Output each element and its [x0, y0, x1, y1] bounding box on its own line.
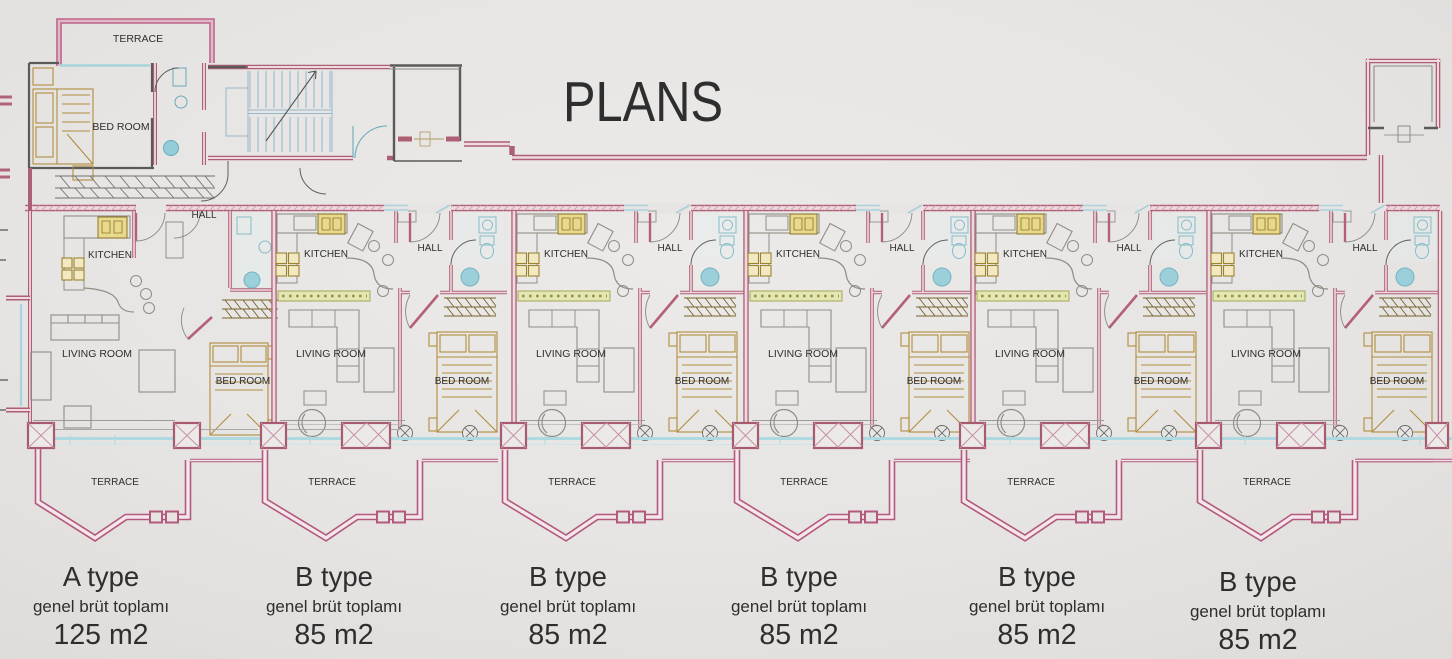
svg-text:85 m2: 85 m2 [997, 619, 1076, 651]
svg-text:BED ROOM: BED ROOM [216, 376, 270, 387]
svg-text:B type: B type [998, 561, 1076, 592]
svg-text:TERRACE: TERRACE [91, 477, 139, 488]
svg-text:85 m2: 85 m2 [1218, 624, 1297, 656]
svg-text:85 m2: 85 m2 [759, 619, 838, 651]
svg-text:genel brüt toplamı: genel brüt toplamı [1190, 602, 1326, 621]
svg-text:genel brüt toplamı: genel brüt toplamı [969, 597, 1105, 616]
svg-text:B type: B type [529, 561, 607, 592]
svg-text:LIVING ROOM: LIVING ROOM [62, 348, 132, 360]
svg-text:B type: B type [295, 561, 373, 592]
svg-text:genel brüt toplamı: genel brüt toplamı [731, 597, 867, 616]
svg-text:genel brüt toplamı: genel brüt toplamı [500, 597, 636, 616]
svg-text:PLANS: PLANS [563, 70, 723, 134]
svg-text:genel brüt toplamı: genel brüt toplamı [266, 597, 402, 616]
svg-text:B type: B type [760, 561, 838, 592]
svg-text:85 m2: 85 m2 [294, 619, 373, 651]
svg-text:125 m2: 125 m2 [53, 619, 148, 651]
svg-text:A type: A type [63, 561, 139, 592]
svg-text:HALL: HALL [191, 210, 216, 221]
svg-text:KITCHEN: KITCHEN [88, 250, 132, 261]
svg-text:BED ROOM: BED ROOM [92, 121, 149, 133]
svg-text:genel brüt toplamı: genel brüt toplamı [33, 597, 169, 616]
svg-text:85 m2: 85 m2 [528, 619, 607, 651]
svg-text:TERRACE: TERRACE [113, 33, 163, 45]
svg-text:B type: B type [1219, 566, 1297, 597]
